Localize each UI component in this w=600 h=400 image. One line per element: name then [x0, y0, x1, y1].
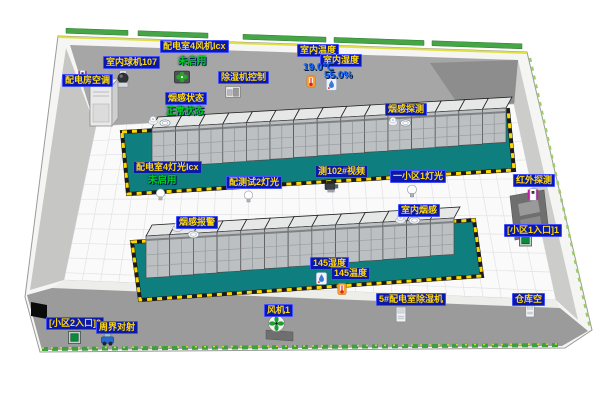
dome-camera-icon[interactable] — [114, 68, 132, 90]
status-fan4: 未启用 — [178, 56, 207, 67]
room-monitoring-stage: 配电室4风机Icx 未启用 室内球机107 配电房空调 除湿机控制 烟感状态 正… — [0, 0, 600, 400]
label-zone1-light[interactable]: 一小区1灯光 — [390, 170, 446, 183]
dehumidifier-icon[interactable] — [393, 303, 409, 326]
infrared-detector-icon[interactable] — [526, 185, 540, 204]
label-light-test2[interactable]: 配测试2灯光 — [226, 176, 282, 189]
label-dehum-control[interactable]: 除湿机控制 — [218, 71, 269, 84]
perimeter-beam-icon[interactable] — [99, 332, 116, 347]
room-3d-view — [0, 0, 600, 400]
label-dome-camera[interactable]: 室内球机107 — [103, 56, 160, 69]
label-video102[interactable]: 测102#视频 — [315, 165, 368, 178]
value-indoor-humidity: 55.0% — [324, 70, 352, 82]
dehumidifier-control-icon[interactable] — [222, 83, 244, 100]
temperature-sensor-icon[interactable] — [336, 279, 348, 299]
label-smoke-detect[interactable]: 烟感探测 — [385, 103, 427, 116]
label-zone1-door[interactable]: [小区1入口]1 — [504, 224, 562, 237]
smoke-detector-ring-icon[interactable] — [185, 228, 202, 241]
label-room-ac[interactable]: 配电房空调 — [62, 74, 113, 87]
label-warehouse[interactable]: 仓库空 — [512, 293, 545, 306]
light-bulb-icon[interactable] — [405, 181, 419, 201]
exhaust-fan-icon[interactable] — [171, 69, 193, 86]
smoke-detector-ring-icon[interactable] — [157, 117, 173, 129]
temperature-sensor-icon[interactable] — [305, 71, 317, 92]
door-contact-icon[interactable] — [67, 329, 82, 346]
label-fan1[interactable]: 风机1 — [264, 304, 293, 317]
label-dehum5[interactable]: 5#配电室除湿机 — [376, 293, 446, 306]
label-smoke-status[interactable]: 烟感状态 — [165, 92, 207, 105]
status-smoke: 正常状态 — [166, 106, 204, 117]
smoke-detector-ring-icon[interactable] — [398, 117, 413, 129]
label-temp145[interactable]: 145温度 — [331, 267, 370, 280]
light-bulb-icon[interactable] — [242, 187, 255, 206]
label-light4[interactable]: 配电室4灯光Icx — [133, 161, 202, 174]
label-fan4[interactable]: 配电室4风机Icx — [160, 40, 229, 53]
ptz-camera-icon[interactable] — [321, 178, 341, 194]
light-bulb-icon[interactable] — [154, 185, 167, 204]
label-infrared[interactable]: 红外探测 — [513, 174, 555, 187]
humidity-sensor-icon[interactable] — [315, 269, 328, 288]
label-smoke-alarm[interactable]: 烟感报警 — [176, 216, 218, 229]
label-indoor-smoke[interactable]: 室内烟感 — [398, 204, 440, 217]
status-light4: 未启用 — [148, 175, 177, 186]
label-perimeter[interactable]: 周界对射 — [96, 321, 138, 334]
